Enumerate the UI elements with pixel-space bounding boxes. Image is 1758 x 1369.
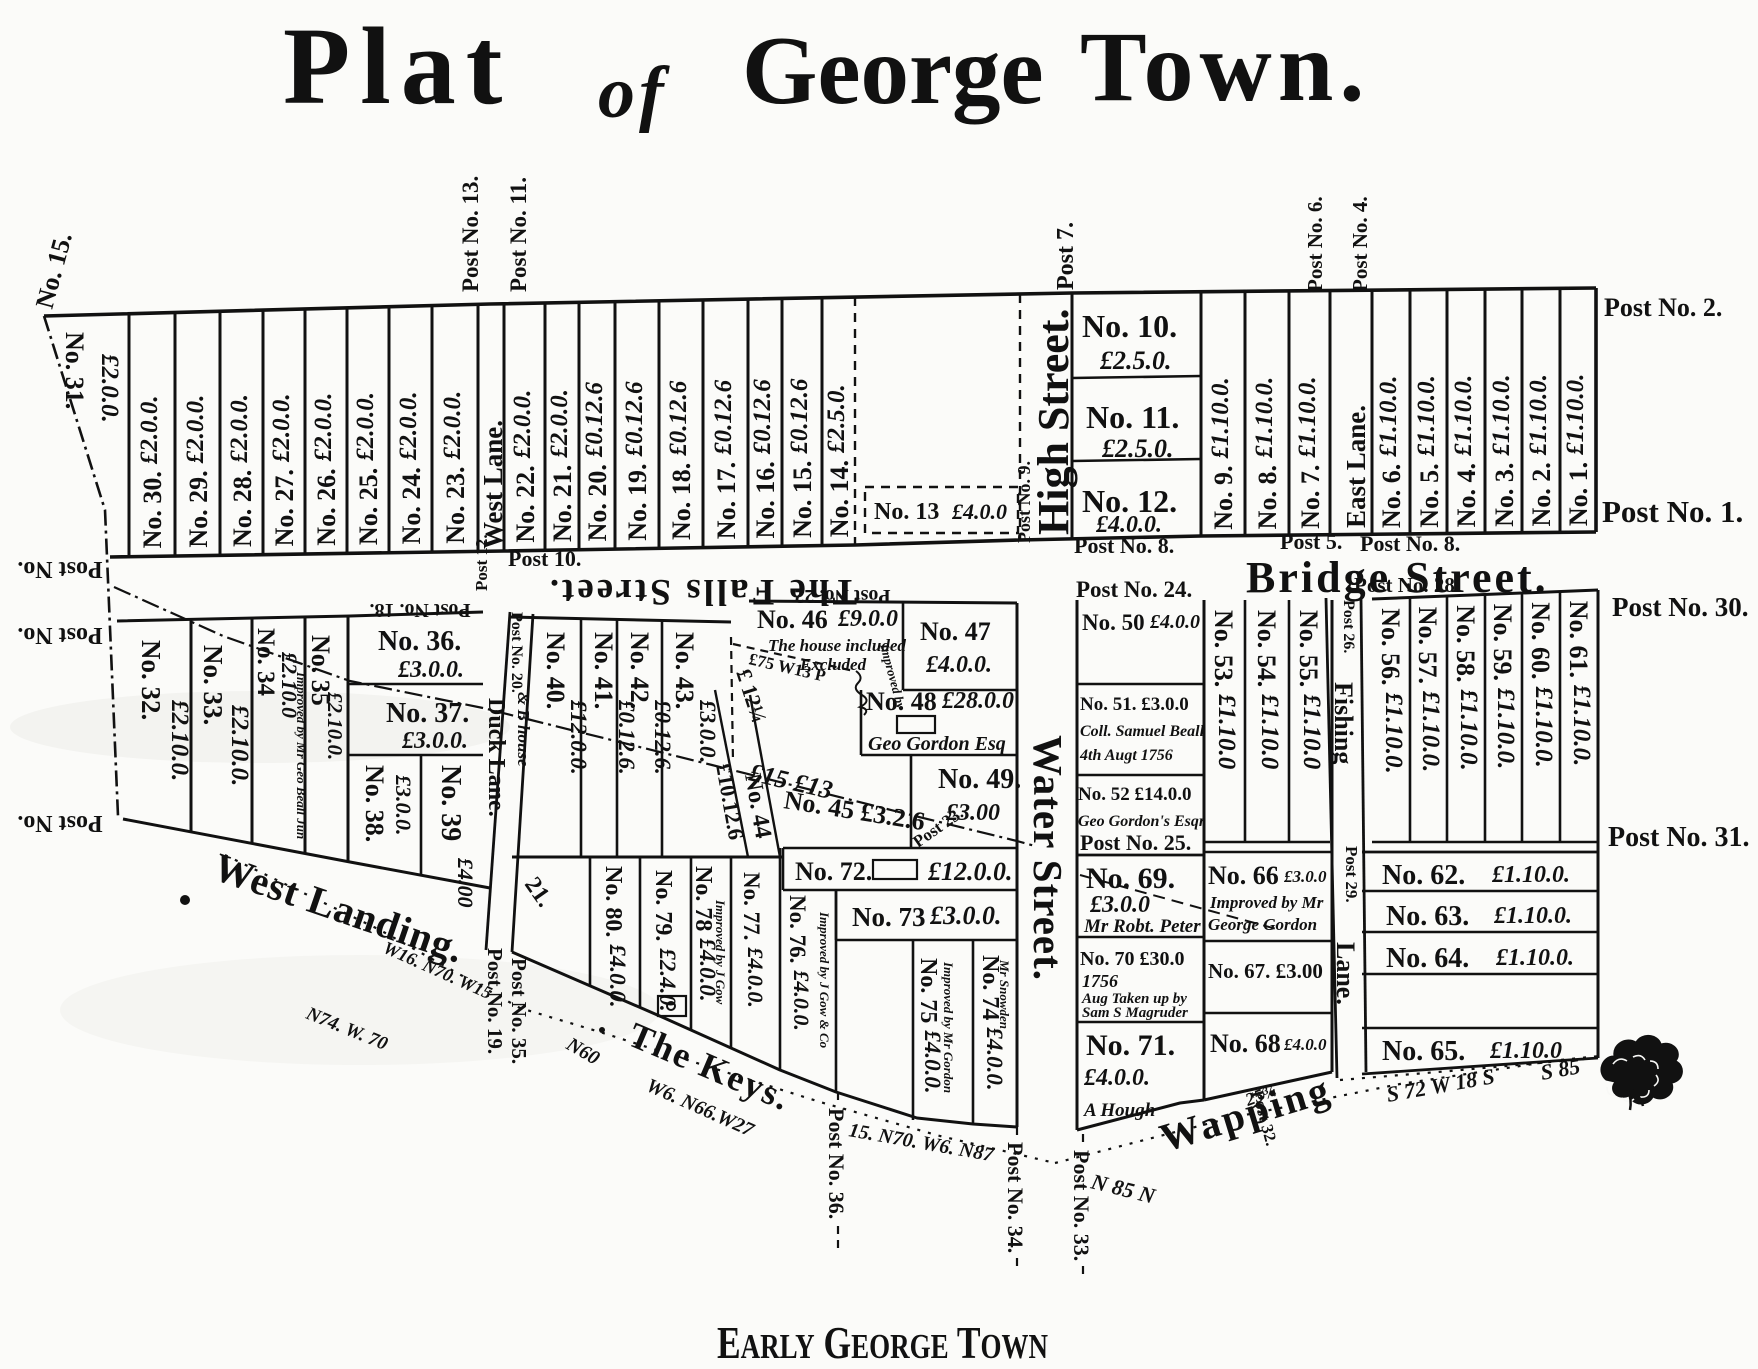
svg-text:Post No. 1.: Post No. 1.	[1602, 494, 1743, 529]
svg-text:Improved by J Gow & Co: Improved by J Gow & Co	[817, 911, 832, 1049]
svg-text:Post 29.: Post 29.	[1342, 846, 1361, 903]
svg-text:No. 34: No. 34	[252, 628, 279, 697]
svg-text:£9.0.0: £9.0.0	[837, 606, 898, 632]
svg-text:No. 24.£2.0.0.: No. 24.£2.0.0.	[395, 391, 426, 544]
svg-text:No. 32.: No. 32.	[136, 640, 166, 720]
svg-text:No. 38.: No. 38.	[360, 765, 389, 842]
svg-text:No. 2.£1.10.0.: No. 2.£1.10.0.	[1525, 374, 1556, 527]
svg-text:No. 41.: No. 41.	[589, 632, 618, 709]
svg-text:No. 71.: No. 71.	[1086, 1029, 1175, 1062]
svg-text:No. 39: No. 39	[435, 765, 466, 841]
svg-text:of: of	[598, 52, 670, 134]
svg-text:Post No. 24.: Post No. 24.	[1076, 577, 1192, 602]
svg-text:£2.0.0.: £2.0.0.	[96, 353, 123, 423]
svg-text:No. 77.£4.0.0.: No. 77.£4.0.0.	[739, 872, 768, 1008]
svg-text:East Lane.: East Lane.	[1341, 405, 1371, 528]
svg-text:Mr Robt. Peter: Mr Robt. Peter	[1083, 916, 1201, 937]
svg-text:Post No. 22.: Post No. 22.	[789, 585, 890, 607]
svg-text:Coll. Samuel Beall: Coll. Samuel Beall	[1080, 723, 1205, 740]
svg-text:Improved by Mr Gordon: Improved by Mr Gordon	[941, 961, 956, 1093]
svg-text:£4.0.0: £4.0.0	[1283, 1035, 1327, 1054]
svg-text:No. 67. £3.00: No. 67. £3.00	[1208, 959, 1323, 983]
svg-text:No. 1.£1.10.0.: No. 1.£1.10.0.	[1562, 374, 1593, 527]
svg-text:Geo Gordon Esq: Geo Gordon Esq	[868, 733, 1006, 755]
svg-text:No. 66: No. 66	[1208, 861, 1279, 890]
svg-text:£3.0.0: £3.0.0	[1283, 867, 1327, 886]
svg-text:West Lane.: West Lane.	[478, 420, 508, 549]
svg-text:No. 37.: No. 37.	[386, 698, 469, 729]
svg-text:Post No. 18.: Post No. 18.	[369, 599, 470, 621]
svg-text:£3.0.0.: £3.0.0.	[695, 699, 720, 763]
svg-text:No. 46: No. 46	[757, 605, 828, 634]
svg-text:No. 5.£1.10.0.: No. 5.£1.10.0.	[1413, 375, 1444, 528]
svg-text:No. 8.£1.10.0.: No. 8.£1.10.0.	[1251, 377, 1282, 530]
svg-text:No. 62.: No. 62.	[1382, 860, 1465, 891]
svg-text:No. 72.: No. 72.	[795, 857, 872, 886]
svg-text:No. 51. £3.0.0: No. 51. £3.0.0	[1080, 694, 1189, 715]
svg-text:No. 36.: No. 36.	[378, 626, 461, 657]
svg-text:Post No. 30.: Post No. 30.	[1612, 592, 1749, 622]
svg-text:No. 4.£1.10.0.: No. 4.£1.10.0.	[1450, 375, 1481, 528]
svg-text:Post No. 13.: Post No. 13.	[458, 176, 483, 292]
svg-text:1756: 1756	[1082, 971, 1118, 991]
svg-text:No. 52 £14.0.0: No. 52 £14.0.0	[1078, 784, 1191, 805]
svg-text:Post No. 8.: Post No. 8.	[1074, 533, 1174, 558]
svg-text:No. 50: No. 50	[1082, 610, 1145, 635]
svg-text:£4.0.0.: £4.0.0.	[1083, 1065, 1150, 1091]
svg-text:No. 22.£2.0.0.: No. 22.£2.0.0.	[509, 390, 540, 543]
svg-text:No. 23.£2.0.0.: No. 23.£2.0.0.	[439, 391, 470, 544]
svg-text:Duck Lane.: Duck Lane.	[483, 698, 509, 817]
svg-text:No. 69.: No. 69.	[1086, 862, 1175, 895]
svg-text:George Gordon: George Gordon	[1208, 915, 1317, 934]
svg-text:No. 47: No. 47	[920, 617, 991, 646]
svg-text:£2.10.0.: £2.10.0.	[226, 704, 253, 786]
svg-text:No. 9.£1.10.0.: No. 9.£1.10.0.	[1207, 377, 1238, 530]
svg-text:Sam S Magruder: Sam S Magruder	[1082, 1005, 1188, 1021]
svg-text:£1.10.0.: £1.10.0.	[1491, 862, 1570, 888]
svg-text:Water Street.: Water Street.	[1025, 735, 1071, 981]
svg-text:No. 49.: No. 49.	[938, 764, 1021, 795]
svg-text:George: George	[742, 17, 1044, 124]
svg-text:No. 65.: No. 65.	[1382, 1036, 1465, 1067]
svg-text:Post No. 34.: Post No. 34.	[1003, 1142, 1028, 1253]
svg-text:No. 68: No. 68	[1210, 1029, 1281, 1058]
svg-text:Plat: Plat	[283, 5, 512, 127]
svg-text:Post No. 19.: Post No. 19.	[483, 948, 507, 1054]
svg-text:Fishing: Fishing	[1329, 682, 1358, 764]
svg-text:Improved by Mr: Improved by Mr	[1209, 893, 1324, 912]
svg-text:No. 40.: No. 40.	[541, 632, 570, 709]
svg-text:No. 10.: No. 10.	[1082, 308, 1177, 344]
svg-text:No. 64.: No. 64.	[1386, 943, 1469, 974]
svg-text:No. 6.£1.10.0.: No. 6.£1.10.0.	[1375, 376, 1406, 529]
svg-text:Post No. 28: Post No. 28	[1354, 573, 1455, 597]
svg-text:£1.10.0.: £1.10.0.	[1495, 945, 1574, 971]
svg-text:£4.0.0: £4.0.0	[951, 499, 1007, 524]
svg-text:£28.0.0: £28.0.0	[941, 688, 1014, 714]
svg-text:No. 30.£2.0.0.: No. 30.£2.0.0.	[136, 395, 167, 548]
svg-text:£3.0.0: £3.0.0	[1089, 892, 1150, 918]
svg-text:No. 21.£2.0.0.: No. 21.£2.0.0.	[546, 389, 577, 542]
svg-text:No. 29.£2.0.0.: No. 29.£2.0.0.	[182, 395, 213, 548]
svg-text:Post No.: Post No.	[17, 810, 102, 836]
svg-text:Geo Gordon's Esqr: Geo Gordon's Esqr	[1078, 813, 1206, 830]
svg-text:£1.10.0.: £1.10.0.	[1493, 903, 1572, 929]
svg-text:No. 28.£2.0.0.: No. 28.£2.0.0.	[226, 394, 257, 547]
svg-text:No. 63.: No. 63.	[1386, 901, 1469, 932]
svg-text:£12.0.0.: £12.0.0.	[566, 699, 591, 775]
svg-text:& B house: & B house	[514, 692, 533, 767]
svg-text:Lane.: Lane.	[1331, 942, 1360, 1005]
svg-text:£3.0.0.: £3.0.0.	[391, 774, 416, 836]
svg-text:No. 25.£2.0.0.: No. 25.£2.0.0.	[352, 392, 383, 545]
svg-text:£2.10.0.: £2.10.0.	[166, 699, 193, 781]
svg-text:Post No. 4.: Post No. 4.	[1348, 196, 1372, 292]
svg-text:Post No. 20.: Post No. 20.	[508, 612, 525, 693]
svg-text:£4.00: £4.00	[453, 857, 478, 908]
svg-text:£4.0.0: £4.0.0	[1149, 611, 1200, 633]
svg-text:No. 11.: No. 11.	[1086, 399, 1179, 435]
svg-text:No. 76.£4.0.0.: No. 76.£4.0.0.	[785, 895, 814, 1031]
svg-text:Post No. 6.: Post No. 6.	[1303, 196, 1327, 292]
svg-text:No. 14.£2.5.0.: No. 14.£2.5.0.	[823, 384, 854, 537]
svg-text:Mr Snowden: Mr Snowden	[997, 959, 1012, 1029]
svg-text:Post 5.: Post 5.	[1280, 529, 1342, 554]
svg-text:Post No. 2.: Post No. 2.	[1604, 293, 1722, 322]
svg-text:£3.0.0.: £3.0.0.	[397, 657, 464, 683]
svg-text:Post No. 36.: Post No. 36.	[824, 1108, 849, 1219]
svg-text:Post No. 33.: Post No. 33.	[1069, 1150, 1094, 1261]
svg-text:Post 26.: Post 26.	[1340, 600, 1357, 653]
svg-text:No. 26.£2.0.0.: No. 26.£2.0.0.	[310, 393, 341, 546]
svg-text:No. 7.£1.10.0.: No. 7.£1.10.0.	[1294, 376, 1325, 529]
svg-text:Post No. 31.: Post No. 31.	[1608, 822, 1750, 853]
svg-text:No. 3.£1.10.0.: No. 3.£1.10.0.	[1488, 374, 1519, 527]
svg-text:£12.0.0.: £12.0.0.	[927, 857, 1013, 886]
svg-text:Post No. 11.: Post No. 11.	[506, 177, 531, 292]
svg-text:Post No.: Post No.	[17, 556, 102, 582]
svg-text:£2.10.0.: £2.10.0.	[323, 691, 347, 760]
svg-text:No. 31.: No. 31.	[60, 332, 89, 409]
svg-text:Post 7.: Post 7.	[1053, 222, 1079, 290]
svg-text:Post 10.: Post 10.	[508, 546, 581, 571]
svg-text:Post 12.: Post 12.	[472, 534, 491, 591]
svg-text:No. 13: No. 13	[874, 499, 939, 525]
svg-text:No. 70 £30.0: No. 70 £30.0	[1080, 948, 1184, 970]
svg-text:Post No.: Post No.	[17, 622, 102, 648]
svg-text:No. 48: No. 48	[866, 687, 937, 716]
svg-text:Post No. 35.: Post No. 35.	[507, 958, 531, 1064]
svg-text:No. 42.: No. 42.	[625, 632, 654, 709]
svg-text:No. 73: No. 73	[852, 902, 926, 932]
svg-text:£4.0.0.: £4.0.0.	[925, 652, 992, 678]
svg-text:£3.0.0.: £3.0.0.	[929, 901, 1002, 930]
svg-text:£2.5.0.: £2.5.0.	[1099, 346, 1172, 375]
svg-text:Improved by J Gow: Improved by J Gow	[713, 899, 728, 1005]
svg-text:Post No. 25.: Post No. 25.	[1080, 830, 1191, 855]
svg-text:Town.: Town.	[1080, 11, 1370, 122]
svg-text:No. 43.: No. 43.	[670, 632, 699, 709]
svg-text:4th Augt 1756: 4th Augt 1756	[1079, 747, 1173, 764]
svg-text:No. 27.£2.0.0.: No. 27.£2.0.0.	[268, 393, 299, 546]
svg-text:£3.0.0.: £3.0.0.	[401, 728, 468, 754]
svg-text:No. 33.: No. 33.	[198, 645, 228, 725]
